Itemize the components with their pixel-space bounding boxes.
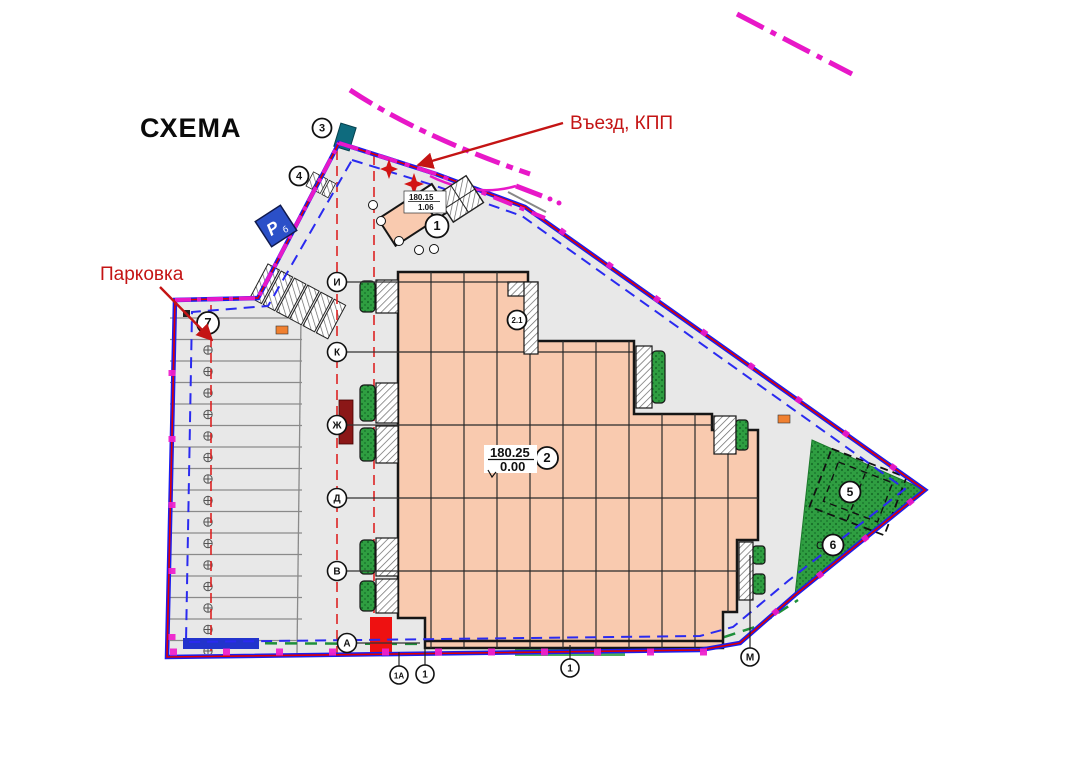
site-plan-page: 180.15 1.06 P б И К Ж Д В	[0, 0, 1072, 768]
c-axis-letter: С	[816, 540, 824, 552]
axis-i: И	[333, 278, 340, 289]
main-elev-bottom: 0.00	[500, 459, 525, 474]
site-plan-drawing: 180.15 1.06 P б И К Ж Д В	[0, 0, 1072, 768]
axis-m: М	[746, 653, 754, 664]
axis-k: К	[334, 348, 341, 359]
callout-2: 2	[543, 450, 550, 465]
callout-2-1: 2.1	[511, 316, 523, 325]
orange-marker-right	[778, 415, 790, 423]
orange-marker-left	[276, 326, 288, 334]
axis-v: В	[333, 567, 340, 578]
axis-1a: 1А	[394, 672, 404, 681]
main-elev-top: 180.25	[490, 445, 530, 460]
callout-3: 3	[319, 123, 325, 135]
callout-1: 1	[433, 218, 440, 233]
page-title: СХЕМА	[140, 113, 241, 143]
green-area	[795, 440, 925, 595]
entrance-label: Въезд, КПП	[570, 113, 673, 134]
axis-1: 1	[422, 670, 428, 681]
parking-label: Парковка	[100, 264, 184, 285]
callout-6: 6	[830, 538, 837, 552]
kpp-elev-bottom: 1.06	[418, 203, 434, 212]
axis-d: Д	[333, 494, 340, 505]
blue-block	[183, 638, 259, 649]
callout-7: 7	[204, 315, 211, 330]
callout-5: 5	[847, 485, 854, 499]
callout-4: 4	[296, 171, 303, 183]
axis-zh: Ж	[331, 421, 342, 432]
axis-1-mid: 1	[567, 664, 573, 675]
kpp-elevation-label: 180.15 1.06	[404, 191, 446, 213]
main-elevation-label: 180.25 0.00	[484, 445, 537, 477]
kpp-elev-top: 180.15	[409, 193, 434, 202]
axis-a: А	[343, 639, 350, 650]
